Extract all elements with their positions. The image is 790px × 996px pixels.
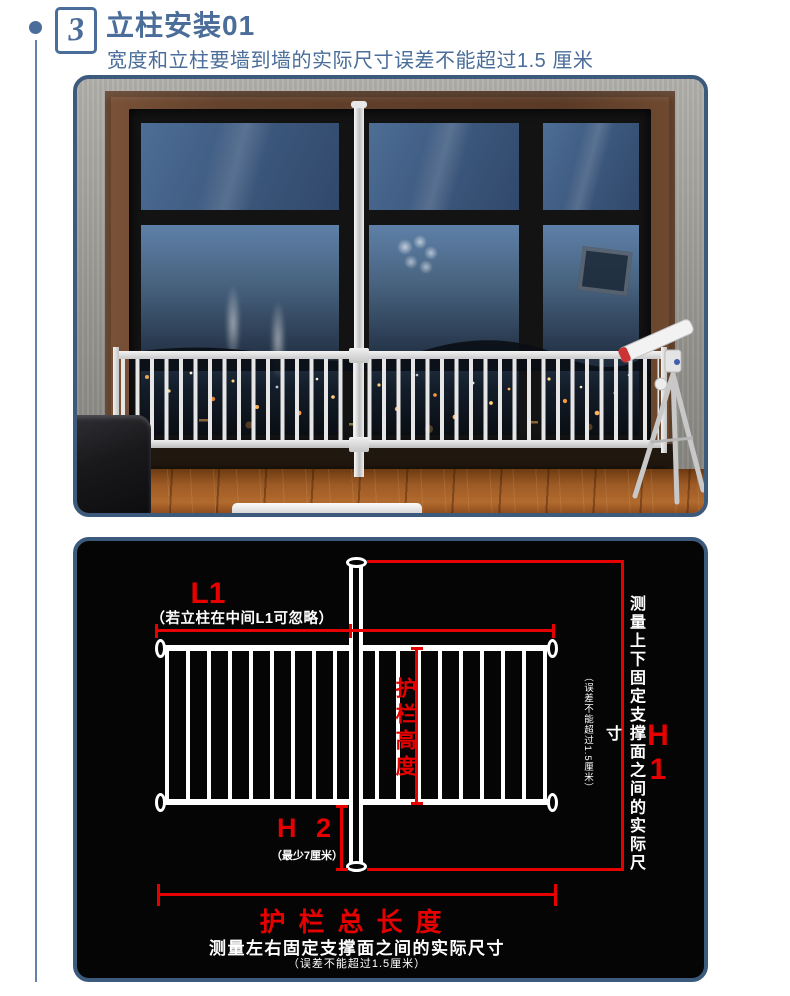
- vertical-measure-note: 测量上下固定支撑面之间的实际尺寸: [599, 593, 647, 875]
- h2-dimension-note: （最少7厘米）: [252, 847, 362, 863]
- rail-end-cap: [547, 639, 558, 658]
- pole-top-cap: [346, 557, 367, 568]
- rail-end-cap: [547, 793, 558, 812]
- railing-bottom-rail: [113, 440, 667, 448]
- page: 3 立柱安装01 宽度和立柱要墙到墙的实际尺寸误差不能超过1.5 厘米: [0, 0, 790, 996]
- step-number-badge: 3: [55, 7, 97, 54]
- section-subtitle: 宽度和立柱要墙到墙的实际尺寸误差不能超过1.5 厘米: [107, 44, 593, 73]
- vertical-measure-note-sub: （误差不能超过1.5厘米）: [580, 665, 594, 801]
- pole-top-cap: [351, 101, 367, 108]
- black-sofa: [73, 415, 151, 513]
- window-pane: [141, 123, 339, 210]
- h2-dimension-line: [340, 805, 343, 871]
- section-title: 立柱安装01: [106, 4, 255, 44]
- step-number: 3: [67, 13, 86, 47]
- window-pane: [543, 123, 639, 210]
- total-length-line: [157, 893, 557, 896]
- l1-dimension-note: （若立柱在中间L1可忽略）: [147, 607, 337, 628]
- pole-rail-joint: [349, 348, 369, 363]
- pole-rail-joint: [349, 437, 369, 452]
- railing-height-label: 护栏高度: [389, 673, 419, 785]
- railing-top-rail: [113, 351, 667, 359]
- accent-dot: [29, 21, 42, 34]
- accent-vertical-line: [35, 40, 37, 982]
- white-table-edge: [232, 503, 422, 513]
- l1-dimension-line: [155, 629, 555, 632]
- l1-dimension-label: L1: [173, 577, 243, 611]
- picture-frame-reflection: [578, 246, 633, 296]
- total-length-note-sub: （误差不能超过1.5厘米）: [207, 955, 507, 971]
- h1-bracket-bottom: [367, 868, 624, 871]
- product-photo: [73, 75, 708, 517]
- measurement-diagram: L1 （若立柱在中间L1可忽略） 护栏高度 H 2 （最少7厘米） H 1 测量…: [73, 537, 708, 982]
- window-pane: [369, 123, 519, 210]
- rail-end-cap: [155, 793, 166, 812]
- telescope: [615, 292, 707, 513]
- h1-bracket-top: [367, 560, 624, 563]
- railing-center-pole: [354, 103, 364, 477]
- railing-bars: [121, 359, 659, 440]
- rail-end-cap: [155, 639, 166, 658]
- chandelier-reflection: [393, 235, 443, 281]
